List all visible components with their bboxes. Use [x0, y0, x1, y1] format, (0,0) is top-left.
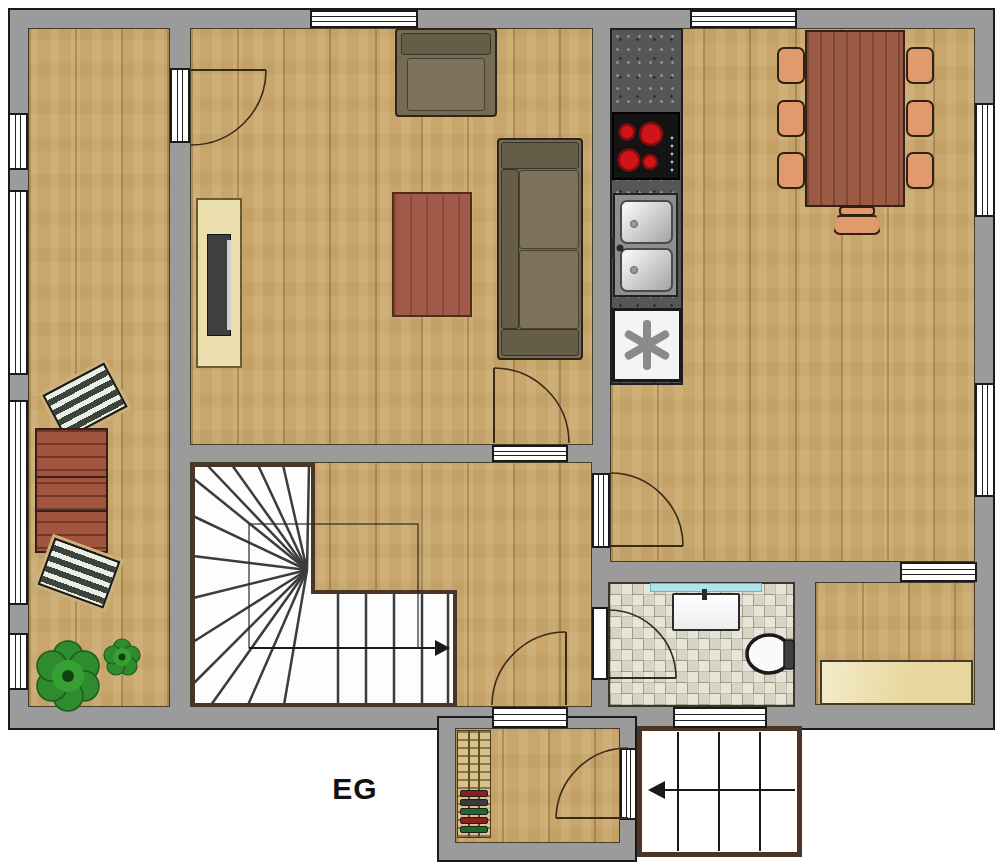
dining-chair-left-3	[777, 152, 805, 189]
window-right-1	[975, 103, 995, 217]
coffee-table	[392, 192, 472, 317]
dining-chair-bottom-back	[839, 206, 875, 216]
freezer	[612, 308, 682, 382]
dining-chair-left-2	[777, 100, 805, 137]
dining-chair-right-2	[906, 100, 934, 137]
window-balcony-2	[8, 190, 28, 375]
room-stair-hall-floor	[190, 462, 592, 707]
dining-chair-right-1	[906, 47, 934, 84]
window-bathroom-south	[673, 707, 767, 728]
kitchen-sink-unit	[613, 193, 678, 297]
shoe-pair-2	[460, 799, 488, 806]
door-frame-hall-bathroom	[592, 607, 608, 680]
door-frame-entrance-porch	[620, 748, 637, 820]
sofa-cushion-1	[519, 170, 579, 249]
entry-porch	[637, 726, 802, 857]
dining-chair-left-1	[777, 47, 805, 84]
sofa-arm-bottom	[501, 329, 579, 356]
floor-plan: EG	[0, 0, 1000, 863]
door-frame-hall-entrance	[492, 707, 568, 728]
dining-table	[805, 30, 905, 207]
window-top-kitchen	[690, 10, 797, 28]
bathroom-faucet	[702, 589, 707, 600]
storage-bench	[820, 660, 973, 705]
armchair-backrest	[401, 33, 491, 55]
sofa-arm-top	[501, 142, 579, 169]
shoe-pair-4	[460, 817, 488, 824]
dining-chair-right-3	[906, 152, 934, 189]
window-right-2	[975, 383, 995, 497]
shoe-pair-1	[460, 790, 488, 797]
door-frame-balcony-living	[170, 68, 190, 143]
window-balcony-4	[8, 633, 28, 690]
shoe-pair-3	[460, 808, 488, 815]
sofa	[497, 138, 583, 360]
sofa-cushion-2	[519, 250, 579, 329]
sink-basin-top	[620, 200, 673, 244]
balcony-table	[35, 428, 108, 553]
dining-chair-bottom-seat	[833, 215, 881, 235]
armchair-cushion	[407, 58, 485, 111]
sofa-backrest	[501, 169, 519, 329]
stove-cooktop	[612, 112, 680, 180]
armchair	[395, 28, 497, 117]
tv-sideboard	[196, 198, 242, 368]
window-balcony-1	[8, 113, 28, 170]
door-frame-living-hall	[492, 445, 568, 462]
window-balcony-3	[8, 400, 28, 605]
floor-label: EG	[300, 772, 410, 808]
tv-screen	[227, 240, 231, 330]
window-top-living	[310, 10, 418, 28]
window-kitchen-storage-wall	[900, 562, 977, 582]
sink-basin-bottom	[620, 248, 673, 292]
shoe-pair-5	[460, 826, 488, 833]
door-frame-hall-kitchen	[592, 473, 610, 548]
